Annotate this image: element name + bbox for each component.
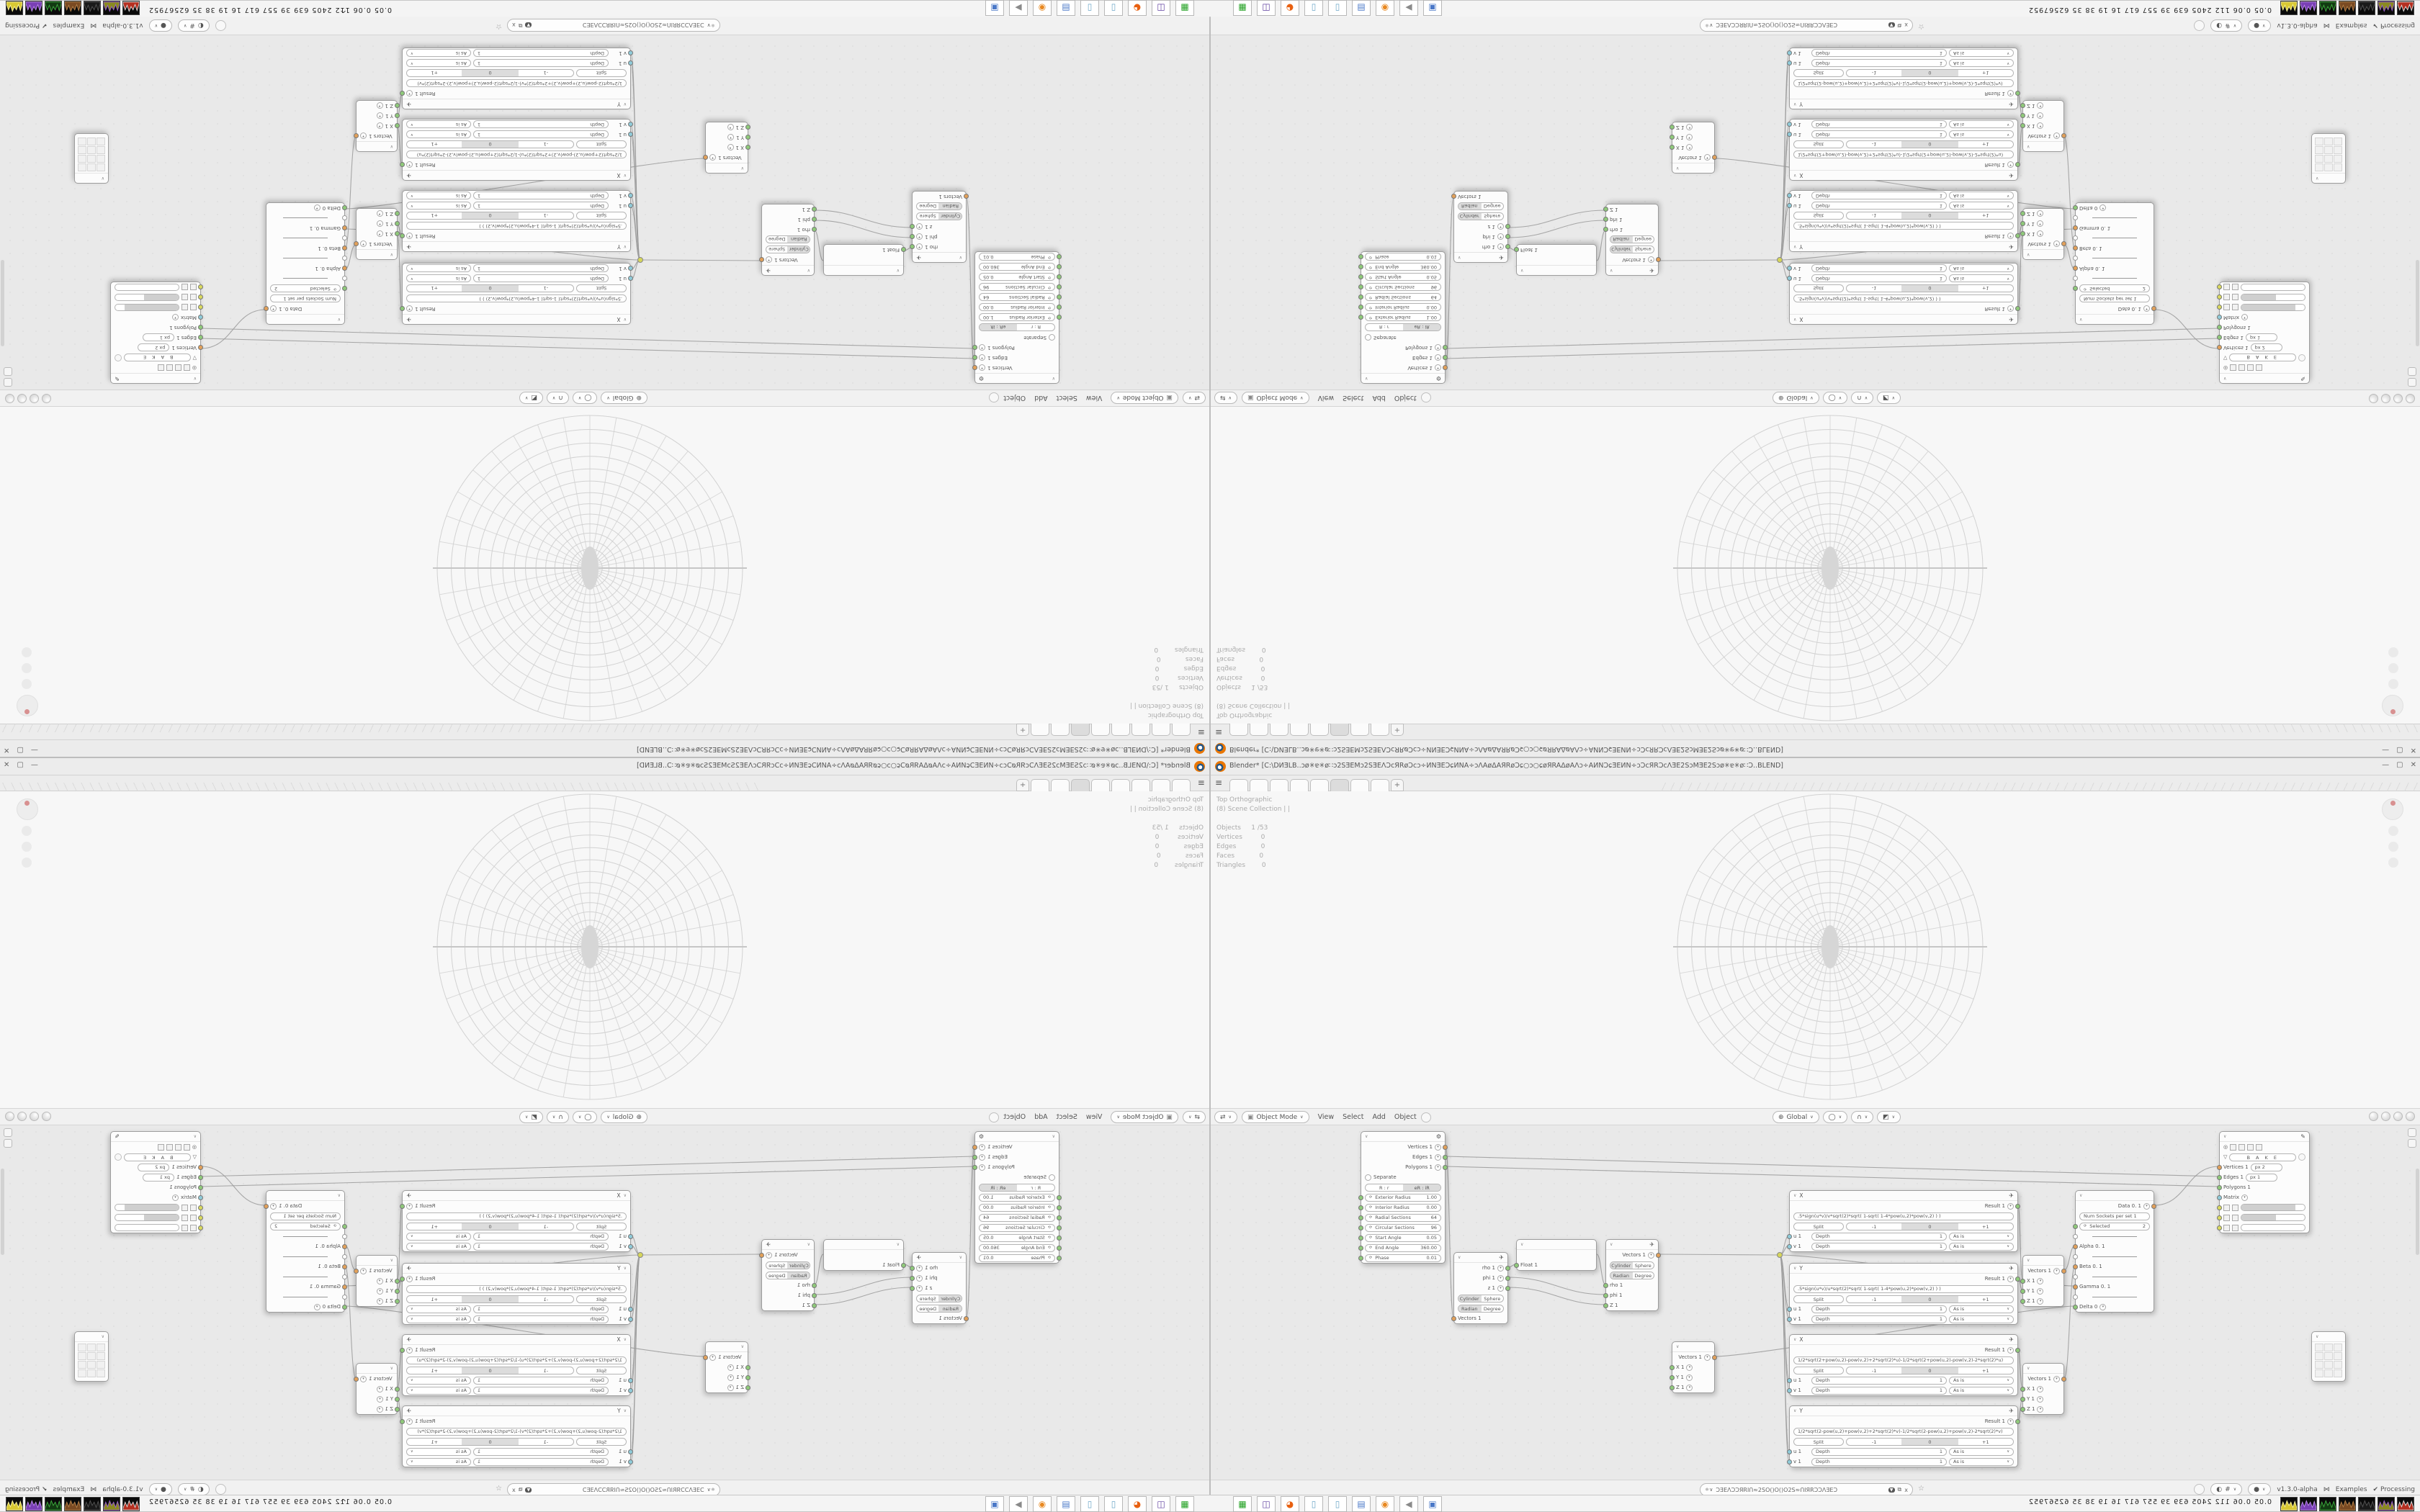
input-u-1[interactable]: u 1Depth1As is∨ [1790,1231,2017,1241]
split-control[interactable]: Split-10+1 [1790,68,2017,78]
seg-Cylinder[interactable]: Cylinder [789,1262,810,1269]
socket-separator[interactable] [266,1231,344,1241]
segmented-control[interactable]: CylinderSphere [762,245,814,255]
orange-socket[interactable] [1451,1316,1456,1321]
socket-separator[interactable] [266,1272,344,1282]
orange-socket[interactable] [1712,1355,1717,1360]
input-v-1[interactable]: v 1Depth1As is∨ [403,1314,630,1324]
orange-socket[interactable] [2073,1244,2078,1249]
segmented-control[interactable]: R : reR : iR [975,1182,1059,1192]
value-stub[interactable]: ▾ [377,113,383,120]
draw-option-row[interactable] [111,1223,200,1233]
node-easing[interactable]: ∨Float 1 [823,244,904,276]
terminal-icon[interactable]: ▦ [1233,0,1252,16]
maximize-button[interactable]: ▢ [17,746,23,754]
unlink-icon[interactable]: x [1904,22,1908,29]
pin-star-icon[interactable]: ☆ [1918,22,1924,30]
green-socket[interactable] [1505,1266,1510,1271]
node-mini-table[interactable]: ∨ [74,133,109,184]
node-header[interactable]: ∨X✈ [403,1191,630,1201]
close-button[interactable]: ✕ [4,761,9,769]
monitor-graph-tile[interactable] [64,1,81,15]
ring-socket[interactable] [2073,236,2078,241]
seg-Radian[interactable]: Radian [789,237,810,243]
monitor-icon[interactable]: ▣ [985,0,1004,16]
value-stub[interactable]: ▾ [314,1304,321,1310]
node-editor[interactable]: ∨⚙Vertices 1▾Edges 1▾Polygons 1▾Separate… [1211,1125,2420,1480]
seg-eR : iR[interactable]: eR : iR [1403,325,1441,331]
wire-junction[interactable] [637,1252,643,1258]
cyan-socket[interactable] [1787,1317,1792,1322]
hardware-monitor-graphs[interactable] [6,1497,140,1511]
node-header[interactable]: ∨Y✈ [403,99,630,109]
output-phi-1[interactable]: phi 1▾ [913,1273,966,1283]
output-Vectors-1[interactable]: Vectors 1▾ [2023,131,2063,141]
output-Vectors-1[interactable]: Vectors 1▾ [706,153,748,163]
input-Z-1[interactable]: Z 1 [762,204,814,215]
yellow-socket[interactable] [2217,1225,2222,1230]
input-Matrix[interactable]: Matrix▾ [2220,312,2309,323]
node-header[interactable]: ∨✈ [913,1253,966,1263]
node-header[interactable]: ∨ [1517,265,1596,275]
cyan-socket[interactable] [628,1234,633,1239]
input-Beta-0.-1[interactable]: Beta 0. 1 [266,243,344,253]
processing-toggle[interactable]: ✔ Processing [5,22,47,30]
value-stub[interactable]: ▾ [2241,315,2248,321]
green-socket[interactable] [1057,1205,1062,1210]
seg-Radian[interactable]: Radian [1458,204,1481,210]
speaker-icon[interactable]: ◀ [1399,0,1418,16]
copy-icon[interactable]: ⧉ [519,1486,523,1493]
editor-corner-buttons[interactable] [2408,1128,2416,1148]
node-formula-x1[interactable]: ∨X✈Result 1▾.5*sign(u*v)/v*sqrt(2)*sqrt(… [1789,263,2018,325]
green-socket[interactable] [1603,207,1608,212]
draw-option-row[interactable] [2220,1223,2309,1233]
input-X-1[interactable]: X 1▾ [2023,121,2063,131]
value-stub[interactable]: ▾ [377,1288,383,1295]
seg-Degree[interactable]: Degree [917,204,940,210]
value-field-Phase[interactable]: ⟳Phase0.01 [975,1253,1059,1263]
text-field[interactable]: .5*sign(u*v)/v*sqrt(2)*sqrt( 1-sqrt( 1-4… [1790,1211,2017,1221]
input-Vertices-1[interactable]: Vertices 1px 2 [2220,343,2309,353]
socket-separator[interactable] [2076,1231,2154,1241]
green-socket[interactable] [2020,1407,2025,1412]
value-stub[interactable]: ▾ [360,133,367,140]
value-stub[interactable]: ▾ [727,125,734,131]
output-Vectors-1[interactable]: Vectors 1▾ [1606,255,1658,265]
input-X-1[interactable]: X 1▾ [2023,229,2063,239]
green-socket[interactable] [1670,145,1675,150]
value-stub[interactable]: ▾ [2037,1288,2043,1295]
value-stub[interactable]: ▾ [2143,306,2150,312]
mode-dropdown[interactable]: ▣Object Mode∨ [1242,1111,1309,1123]
zoom-button[interactable] [2388,679,2398,689]
node-header[interactable]: ∨ [2023,1256,2063,1266]
value-stub[interactable]: ▾ [377,1386,383,1392]
close-button[interactable]: ✕ [2411,746,2416,754]
node-formula-y1[interactable]: ∨Y✈Result 1▾.5*sign(u*v)/u*sqrt(2)*sqrt(… [1789,1263,2018,1325]
green-socket[interactable] [812,1283,817,1288]
scrollbar[interactable] [1,260,4,346]
input-Z-1[interactable]: Z 1▾ [357,101,397,111]
segmented-control[interactable]: RadianDegree [1454,202,1507,212]
text-field[interactable]: 1/2*sqrt(2+pow(u,2)-pow(v,2)+2*sqrt(2)*u… [1790,150,2017,160]
camera-button[interactable] [22,858,32,868]
text-field[interactable]: .5*sign(u*v)/u*sqrt(2)*sqrt( 1-sqrt( 1-4… [403,221,630,231]
input-u-1[interactable]: u 1Depth1As is∨ [1790,130,2017,140]
green-socket[interactable] [1603,1303,1608,1308]
input-Z-1[interactable]: Z 1▾ [2023,209,2063,219]
text-field[interactable]: .5*sign(u*v)/v*sqrt(2)*sqrt( 1-sqrt( 1-4… [403,294,630,304]
green-socket[interactable] [2217,1185,2222,1190]
socket-separator[interactable] [266,213,344,223]
text-field[interactable]: Num Sockets per set 1 [2076,294,2154,304]
input-Vectors-1[interactable]: Vectors 1 [913,192,966,202]
output-phi-1[interactable]: phi 1▾ [1454,1273,1507,1283]
input-v-1[interactable]: v 1Depth1As is∨ [1790,1314,2017,1324]
value-stub[interactable]: ▾ [2143,1203,2150,1210]
seg-eR : iR[interactable]: eR : iR [980,1184,1018,1191]
green-socket[interactable] [972,1155,977,1160]
input-Delta-0[interactable]: Delta 0▾ [2076,203,2154,213]
node-vector-in-c[interactable]: ∨Vectors 1▾X 1▾Y 1▾Z 1▾ [1672,122,1715,174]
seg-R : r[interactable]: R : r [1366,1184,1403,1191]
speaker-icon[interactable]: ◀ [1009,0,1028,16]
input-Z-1[interactable]: Z 1▾ [706,122,748,132]
cyan-socket[interactable] [628,1388,633,1393]
green-socket[interactable] [910,1276,915,1281]
input-v-1[interactable]: v 1Depth1As is∨ [1790,1241,2017,1251]
firefox-icon[interactable]: ◕ [1128,1496,1147,1512]
overlays-button[interactable]: ◩∨ [1877,392,1901,404]
workspace-tab-1[interactable] [1172,779,1191,791]
value-stub[interactable]: ▾ [1435,1144,1441,1151]
orange-socket[interactable] [1443,1145,1448,1150]
orange-socket[interactable] [2217,1165,2222,1170]
text-field[interactable]: 1/2*sqrt(2-pow(u,2)+pow(v,2)+2*sqrt(2)*v… [1790,1426,2017,1436]
node-input-switch[interactable]: ∨Data 0. 1▾Num Sockets per set 1⟳Selecte… [266,1190,345,1313]
input-Y-1[interactable]: Y 1▾ [1672,1372,1714,1382]
output-Vertices-1[interactable]: Vertices 1▾ [1361,363,1445,373]
segmented-control[interactable]: RadianDegree [762,235,814,245]
value-stub[interactable]: ▾ [1435,365,1441,372]
orange-socket[interactable] [342,1244,347,1249]
output-Vectors-1[interactable]: Vectors 1▾ [2023,1266,2063,1276]
monitor-graph-tile[interactable] [2378,1497,2395,1511]
value-stub[interactable]: ▾ [1497,224,1504,230]
value-stub[interactable]: ▾ [377,123,383,130]
node-header[interactable]: ∨ [2312,1332,2345,1342]
green-socket[interactable] [400,1277,405,1282]
seg-Cylinder[interactable]: Cylinder [940,214,962,220]
scrollbar[interactable] [2416,1169,2419,1255]
node-header[interactable]: ∨ [2312,173,2345,183]
viewport-3d[interactable]: Top Orthographic (8) Scene Collection | … [1211,407,2420,724]
output-Data-0.-1[interactable]: Data 0. 1▾ [2076,1201,2154,1211]
value-stub[interactable]: ▾ [377,103,383,109]
value-field-End-Angle[interactable]: ⟳End Angle360.00 [975,1243,1059,1253]
node-formula-x2[interactable]: ∨X✈Result 1▾1/2*sqrt(2+pow(u,2)-pow(v,2)… [402,119,631,181]
value-stub[interactable]: ▾ [916,224,923,230]
maximize-button[interactable]: ▢ [17,761,23,769]
monitor-graph-tile[interactable] [2280,1497,2298,1511]
node-viewer-draw[interactable]: ∨✎◎▽B A K EVertices 1px 2Edges 1px 1Poly… [2219,1131,2310,1233]
green-socket[interactable] [1358,1225,1363,1230]
input-X-1[interactable]: X 1▾ [357,1276,397,1286]
node-formula-x1[interactable]: ∨X✈Result 1▾.5*sign(u*v)/v*sqrt(2)*sqrt(… [402,1190,631,1252]
yellow-socket[interactable] [2217,295,2222,300]
workspace-tab-2[interactable] [1250,724,1268,736]
chevron-up-icon[interactable]: ^ [340,1498,346,1507]
green-socket[interactable] [198,1175,203,1180]
window-icon[interactable]: ▤ [1057,1496,1075,1512]
draw-option-row[interactable] [2220,1202,2309,1212]
orientation-dropdown[interactable]: ⊕Global∨ [1773,392,1819,404]
bake-button[interactable]: B A K E [2229,354,2296,362]
workspace-tab-4[interactable] [1111,779,1130,791]
node-header[interactable]: ∨✈ [762,1240,814,1250]
value-stub[interactable]: ▾ [2007,233,2014,240]
split-control[interactable]: Split-10+1 [1790,211,2017,221]
green-socket[interactable] [1443,1155,1448,1160]
value-stub[interactable]: ▾ [2007,1276,2014,1282]
green-socket[interactable] [2015,1277,2020,1282]
monitor-graph-tile[interactable] [25,1,42,15]
seg-Radian[interactable]: Radian [1458,1305,1481,1312]
socket-separator[interactable] [266,233,344,243]
input-Polygons-1[interactable]: Polygons 1 [2220,1182,2309,1192]
workspace-tab-7[interactable] [1350,724,1369,736]
input-u-1[interactable]: u 1Depth1As is∨ [403,1375,630,1385]
green-socket[interactable] [395,1279,400,1284]
text-field[interactable]: 1/2*sqrt(2-pow(u,2)+pow(v,2)+2*sqrt(2)*v… [1790,78,2017,89]
seg-Degree[interactable]: Degree [917,1305,940,1312]
node-header[interactable]: ∨ [1672,163,1714,173]
value-stub[interactable]: ▾ [406,162,413,168]
monitor-graph-tile[interactable] [64,1497,81,1511]
examples-menu[interactable]: Examples [53,1486,84,1493]
output-Edges-1[interactable]: Edges 1▾ [1361,353,1445,363]
node-vector-in-2[interactable]: ∨Vectors 1▾X 1▾Y 1▾Z 1▾ [356,1363,398,1415]
green-socket[interactable] [400,163,405,168]
green-socket[interactable] [1670,125,1675,130]
input-v-1[interactable]: v 1Depth1As is∨ [403,1241,630,1251]
camera-button[interactable] [2388,647,2398,657]
green-socket[interactable] [745,1375,750,1380]
node-formula-x2[interactable]: ∨X✈Result 1▾1/2*sqrt(2+pow(u,2)-pow(v,2)… [1789,119,2018,181]
shading-mode-buttons[interactable] [5,1112,51,1121]
green-socket[interactable] [2020,212,2025,217]
text-field[interactable]: 1/2*sqrt(2+pow(u,2)-pow(v,2)+2*sqrt(2)*u… [403,150,630,160]
input-rho-1[interactable]: rho 1 [1606,1280,1658,1290]
yellow-socket[interactable] [2217,1205,2222,1210]
node-header[interactable]: ∨✈ [913,252,966,262]
proportional-edit-button[interactable]: ◯∨ [1823,392,1847,404]
scissors-icon[interactable]: ⋈ [2323,22,2330,30]
pan-button[interactable] [2388,663,2398,673]
window-icon[interactable]: ▤ [1352,1496,1371,1512]
output-Result-1[interactable]: Result 1▾ [1790,231,2017,241]
value-stub[interactable]: ▾ [406,1203,413,1210]
output-Result-1[interactable]: Result 1▾ [1790,1416,2017,1426]
input-rho-1[interactable]: rho 1 [762,1280,814,1290]
input-v-1[interactable]: v 1Depth1As is∨ [1790,264,2017,274]
value-stub[interactable]: ▾ [406,306,413,312]
cyan-socket[interactable] [1787,132,1792,138]
node-polar-in[interactable]: ∨✈Vectors 1▾CylinderSphereRadianDegreerh… [1605,1239,1659,1311]
seg-Radian[interactable]: Radian [1610,237,1632,243]
output-Edges-1[interactable]: Edges 1▾ [1361,1152,1445,1162]
draw-option-row[interactable] [111,302,200,312]
node-header[interactable]: ∨ [1517,1240,1596,1250]
value-stub[interactable]: ▾ [2007,1203,2014,1210]
input-X-1[interactable]: X 1▾ [2023,1384,2063,1394]
cyan-socket[interactable] [1787,51,1792,56]
value-stub[interactable]: ▾ [979,345,985,351]
output-Vectors-1[interactable]: Vectors 1▾ [762,1250,814,1260]
input-Vertices-1[interactable]: Vertices 1px 2 [2220,1162,2309,1172]
node-vector-in-1[interactable]: ∨Vectors 1▾X 1▾Y 1▾Z 1▾ [2022,1255,2064,1307]
monitor-graph-tile[interactable] [2397,1,2414,15]
proportional-edit-button[interactable]: ◯∨ [1823,1111,1847,1123]
input-Z-1[interactable]: Z 1▾ [1672,1382,1714,1392]
output-Data-0.-1[interactable]: Data 0. 1▾ [266,304,344,314]
green-socket[interactable] [2020,124,2025,129]
green-socket[interactable] [395,1387,400,1392]
ring-socket[interactable] [2073,256,2078,261]
socket-separator[interactable] [2076,213,2154,223]
cyan-socket[interactable] [628,1317,633,1322]
value-stub[interactable]: ▾ [1704,1354,1711,1361]
output-Vectors-1[interactable]: Vectors 1▾ [762,255,814,265]
notepad-icon[interactable]: ▯ [1080,1496,1099,1512]
seg-R : r[interactable]: R : r [1018,1184,1055,1191]
node-header[interactable]: ∨ [266,314,344,324]
value-stub[interactable]: ▾ [2037,123,2043,130]
orange-socket[interactable] [354,242,359,247]
orange-socket[interactable] [1451,194,1456,199]
seg-Degree[interactable]: Degree [766,237,789,243]
input-u-1[interactable]: u 1Depth1As is∨ [1790,1375,2017,1385]
orange-socket[interactable] [2061,1377,2066,1382]
node-header[interactable]: ∨ [357,1364,397,1374]
segmented-control[interactable]: R : reR : iR [975,323,1059,333]
speaker-icon[interactable]: ◀ [1399,1496,1418,1512]
tool-circle-icon[interactable] [1421,393,1431,403]
node-header[interactable]: ∨✎ [111,1132,200,1142]
mode-dropdown[interactable]: ▣Object Mode∨ [1242,392,1309,404]
green-socket[interactable] [342,1224,347,1229]
node-header[interactable]: ∨✈ [1606,1240,1658,1250]
ring-socket[interactable] [342,1254,347,1259]
value-stub[interactable]: ▾ [1497,1285,1504,1292]
output-z-1[interactable]: z 1▾ [913,222,966,232]
ring-socket[interactable] [342,1274,347,1279]
input-X-1[interactable]: X 1▾ [357,1384,397,1394]
input-Beta-0.-1[interactable]: Beta 0. 1 [2076,1261,2154,1272]
monitor-graph-tile[interactable] [2280,1,2298,15]
workspace-tab-1[interactable] [1229,779,1248,791]
blender-app-icon[interactable]: ◉ [1376,1496,1394,1512]
green-socket[interactable] [1358,1246,1363,1251]
output-rho-1[interactable]: rho 1▾ [913,242,966,252]
cyan-socket[interactable] [1787,1234,1792,1239]
value-field-Interior-Radius[interactable]: ⟳Interior Radius0.00 [1361,302,1445,312]
input-Y-1[interactable]: Y 1▾ [2023,111,2063,121]
scissors-icon[interactable]: ⋈ [90,22,97,30]
input-v-1[interactable]: v 1Depth1As is∨ [403,264,630,274]
snap-magnet-button[interactable]: ∩∨ [1851,392,1873,404]
input-u-1[interactable]: u 1Depth1As is∨ [1790,1304,2017,1314]
cyan-socket[interactable] [628,1449,633,1454]
value-field-Start-Angle[interactable]: ⟳Start Angle0.05 [1361,272,1445,282]
green-socket[interactable] [1358,1205,1363,1210]
value-stub[interactable]: ▾ [360,241,367,248]
value-stub[interactable]: ▾ [377,211,383,217]
draw-option-row[interactable] [2220,282,2309,292]
pin-star-icon[interactable]: ☆ [496,1485,502,1493]
camera-button[interactable] [22,647,32,657]
node-formula-x2[interactable]: ∨X✈Result 1▾1/2*sqrt(2+pow(u,2)-pow(v,2)… [402,1334,631,1396]
menu-view[interactable]: View [1086,1113,1103,1121]
green-socket[interactable] [2020,1387,2025,1392]
input-Z-1[interactable]: Z 1 [762,1300,814,1310]
seg-Cylinder[interactable]: Cylinder [789,247,810,253]
input-u-1[interactable]: u 1Depth1As is∨ [403,58,630,68]
workspace-tab-4[interactable] [1290,779,1309,791]
green-socket[interactable] [1603,1293,1608,1298]
menu-view[interactable]: View [1318,394,1335,402]
orange-socket[interactable] [2151,1204,2156,1209]
speaker-icon[interactable]: ◀ [1009,1496,1028,1512]
split-control[interactable]: Split-10+1 [403,1436,630,1446]
value-stub[interactable]: ▾ [2099,205,2106,212]
orange-socket[interactable] [2073,1264,2078,1269]
output-Polygons-1[interactable]: Polygons 1▾ [1361,1162,1445,1172]
cyan-socket[interactable] [2217,1195,2222,1200]
seg-Cylinder[interactable]: Cylinder [940,1295,962,1302]
text-field[interactable]: .5*sign(u*v)/v*sqrt(2)*sqrt( 1-sqrt( 1-4… [403,1211,630,1221]
seg-Degree[interactable]: Degree [1632,1272,1654,1279]
monitor-graph-tile[interactable] [2339,1,2356,15]
input-v-1[interactable]: v 1Depth1As is∨ [403,1457,630,1467]
value-stub[interactable]: ▾ [979,1144,985,1151]
tool-circle-icon[interactable] [989,393,999,403]
green-socket[interactable] [2020,1299,2025,1304]
menu-view[interactable]: View [1318,1113,1335,1121]
seg-Sphere[interactable]: Sphere [917,1295,940,1302]
node-torus[interactable]: ∨⚙Vertices 1▾Edges 1▾Polygons 1▾Separate… [974,1131,1059,1264]
green-socket[interactable] [395,1299,400,1304]
window-icon[interactable]: ▤ [1057,0,1075,16]
value-field-Selected[interactable]: ⟳Selected2 [266,1221,344,1231]
green-socket[interactable] [1603,1283,1608,1288]
snap-magnet-button[interactable]: ∩∨ [547,392,569,404]
menu-add[interactable]: Add [1034,394,1047,402]
seg-R : r[interactable]: R : r [1018,325,1055,331]
menu-add[interactable]: Add [1372,1113,1385,1121]
green-socket[interactable] [2020,1289,2025,1294]
cyan-socket[interactable] [1787,1244,1792,1249]
green-socket[interactable] [1057,1256,1062,1261]
workspace-tab-7[interactable] [1051,779,1070,791]
draw-option-row[interactable] [2220,1212,2309,1223]
cyan-socket[interactable] [1787,1307,1792,1312]
input-u-1[interactable]: u 1Depth1As is∨ [403,1231,630,1241]
input-Vertices-1[interactable]: Vertices 1px 2 [111,343,200,353]
status-pill-1[interactable]: ◐#∨ [2210,19,2242,32]
terminal-icon[interactable]: ▦ [1233,1496,1252,1512]
